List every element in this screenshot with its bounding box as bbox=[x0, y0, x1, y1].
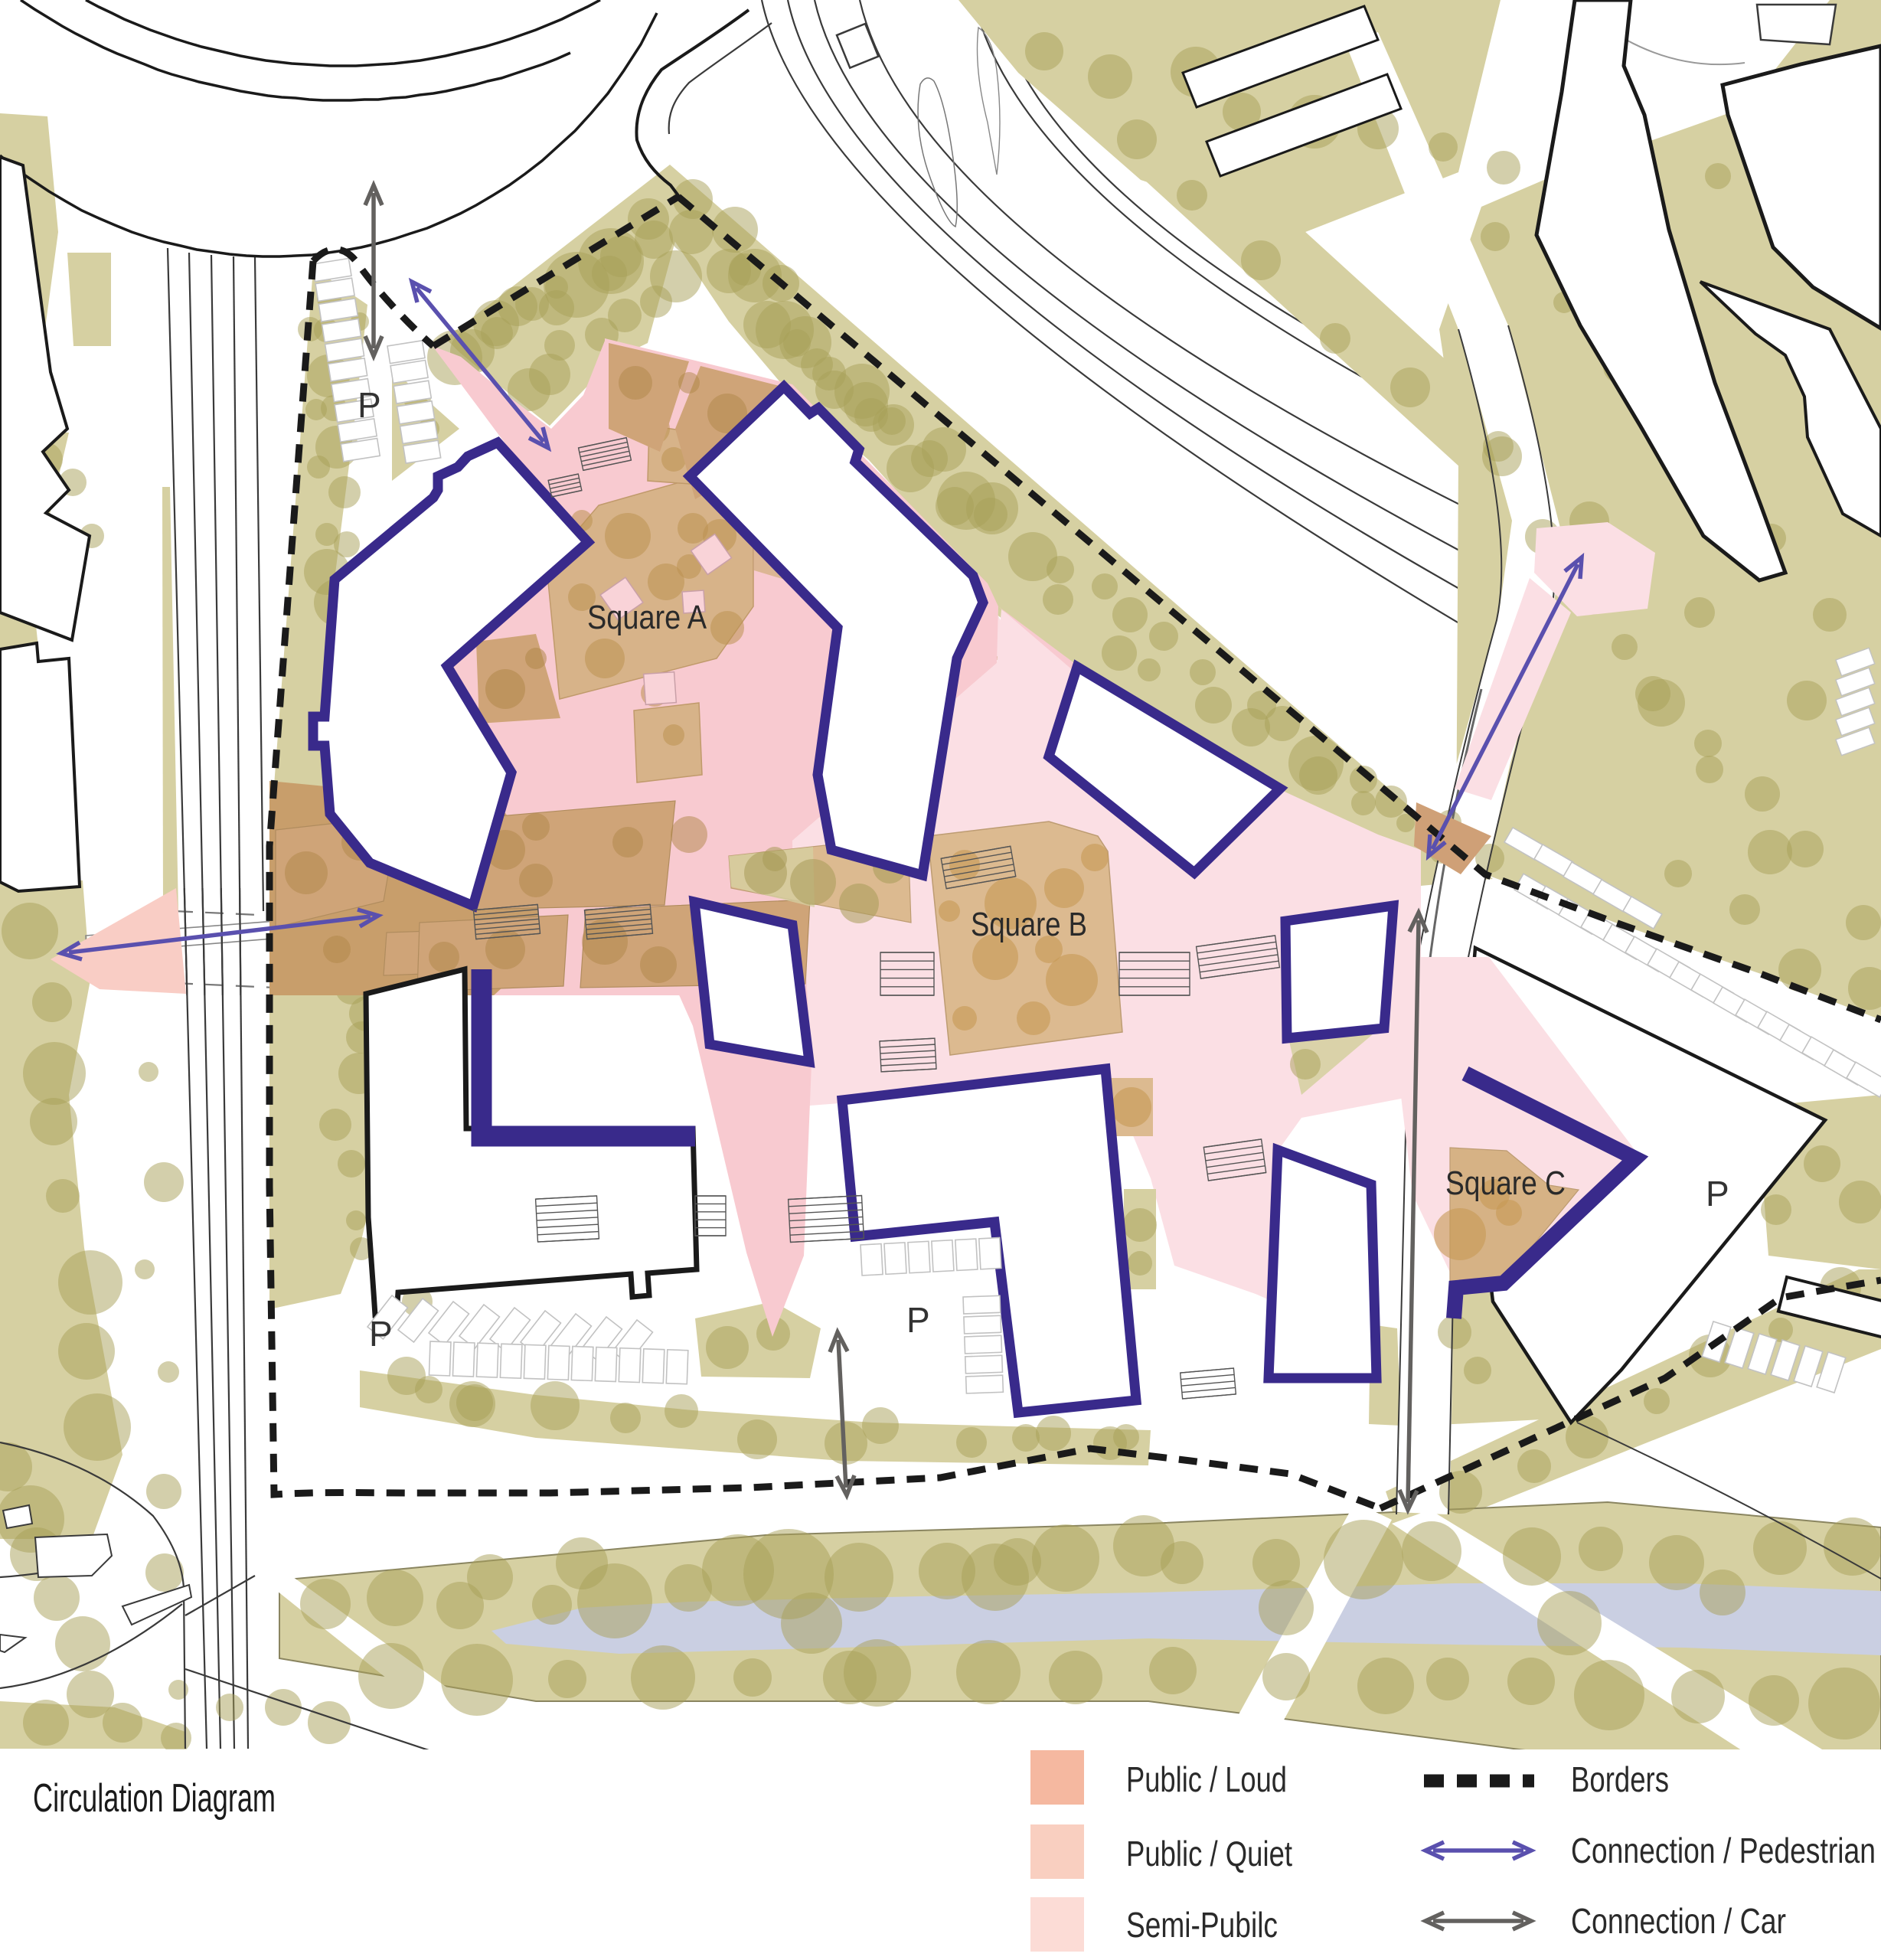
svg-text:Semi-Pubilc: Semi-Pubilc bbox=[1126, 1905, 1278, 1945]
svg-text:P: P bbox=[369, 1314, 393, 1354]
svg-text:P: P bbox=[1706, 1174, 1729, 1214]
svg-text:Connection / Pedestrian: Connection / Pedestrian bbox=[1571, 1831, 1876, 1870]
svg-text:Square A: Square A bbox=[587, 599, 707, 636]
svg-text:P: P bbox=[906, 1300, 930, 1340]
svg-text:P: P bbox=[358, 385, 381, 425]
svg-text:Square B: Square B bbox=[971, 906, 1087, 943]
svg-text:Public / Loud: Public / Loud bbox=[1126, 1759, 1287, 1799]
svg-text:Borders: Borders bbox=[1571, 1759, 1669, 1799]
svg-text:Circulation Diagram: Circulation Diagram bbox=[33, 1776, 276, 1821]
svg-text:Square C: Square C bbox=[1445, 1165, 1566, 1202]
svg-text:Connection / Car: Connection / Car bbox=[1571, 1901, 1786, 1941]
svg-text:Public / Quiet: Public / Quiet bbox=[1126, 1834, 1292, 1873]
